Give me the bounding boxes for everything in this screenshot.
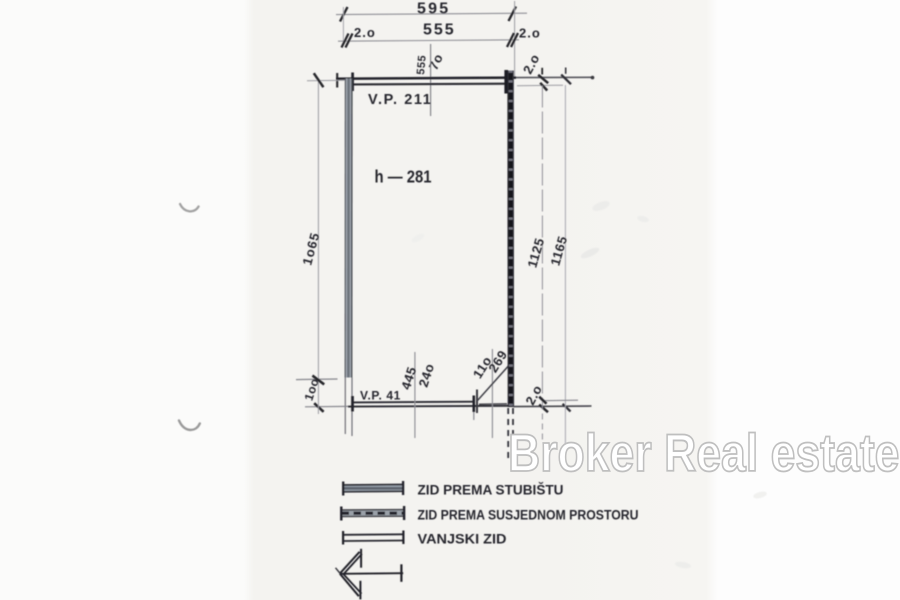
svg-text:V.P. 41: V.P. 41 (360, 389, 401, 403)
svg-text:7o: 7o (426, 51, 446, 72)
svg-text:2.o: 2.o (520, 51, 543, 76)
svg-text:ZID PREMA STUBIŠTU: ZID PREMA STUBIŠTU (418, 483, 564, 498)
svg-text:h — 281: h — 281 (375, 167, 432, 187)
svg-text:1o65: 1o65 (299, 230, 322, 266)
svg-text:555: 555 (423, 22, 456, 39)
svg-text:269: 269 (485, 347, 510, 375)
svg-text:2.o: 2.o (519, 26, 541, 41)
svg-text:ZID PREMA SUSJEDNOM PROSTORU: ZID PREMA SUSJEDNOM PROSTORU (418, 508, 639, 523)
svg-text:1125: 1125 (524, 236, 547, 269)
svg-text:V.P. 211: V.P. 211 (368, 92, 432, 108)
svg-text:VANJSKI ZID: VANJSKI ZID (418, 532, 507, 547)
svg-text:445: 445 (398, 365, 419, 392)
svg-text:2.o: 2.o (354, 25, 376, 40)
svg-text:24o: 24o (416, 362, 438, 389)
svg-text:2.o: 2.o (522, 382, 545, 407)
svg-text:595: 595 (417, 1, 450, 18)
svg-text:1165: 1165 (547, 234, 570, 267)
